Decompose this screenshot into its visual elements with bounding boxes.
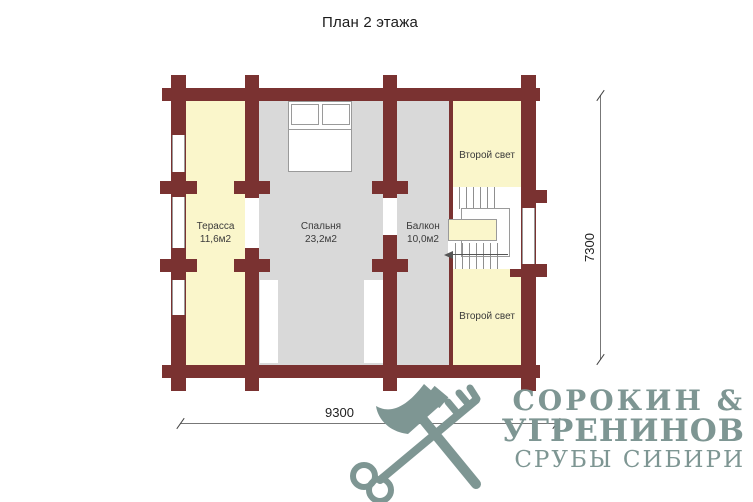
log-stub (372, 181, 408, 194)
dimension-height-label-wrap: 7300 (582, 261, 611, 279)
room-bedroom-label: Спальня (301, 220, 341, 234)
closet-right (364, 280, 383, 363)
room-terrace-label: Терасса (197, 220, 235, 234)
log-stub (234, 259, 270, 272)
stair-direction-arrow-icon (444, 251, 453, 259)
bed-fold-line (289, 129, 351, 130)
log-stub (245, 75, 259, 114)
log-stub (160, 259, 197, 272)
closet-left (260, 280, 278, 363)
wall-top (162, 88, 540, 101)
floor-plan-page: План 2 этажа Терасса 11,6м2 Спальня 23,2… (0, 0, 753, 502)
room-balcony-label: Балкон (406, 220, 440, 234)
room-bedroom-area: 23,2м2 (305, 233, 337, 247)
log-stub (171, 75, 186, 114)
stair-direction-line (452, 254, 508, 255)
bed-pillow-left (291, 104, 319, 125)
door-terrace-bedroom (245, 198, 259, 248)
page-title: План 2 этажа (0, 14, 740, 31)
door-bedroom-balcony (383, 198, 397, 235)
room-balcony-area: 10,0м2 (407, 233, 439, 247)
axe-and-key-logo-icon (346, 380, 518, 502)
bed-pillow-right (322, 104, 350, 125)
room-second-light-top-label: Второй свет (459, 149, 515, 163)
log-stub (372, 259, 408, 272)
window-right-stair (522, 208, 535, 264)
log-stub (160, 181, 197, 194)
window-left-2 (172, 197, 185, 248)
log-stub (245, 352, 259, 391)
window-left-3 (172, 280, 185, 315)
dimension-height-label: 7300 (582, 233, 597, 262)
logo-text: СОРОКИН & УГРЕНИНОВ СРУБЫ СИБИРИ (497, 386, 745, 473)
room-balcony: Балкон 10,0м2 (397, 101, 449, 365)
room-terrace-area: 11,6м2 (200, 233, 231, 247)
room-second-light-top: Второй свет (453, 101, 521, 187)
logo-name-line2: УГРЕНИНОВ (497, 415, 745, 447)
room-second-light-bottom-label: Второй свет (459, 310, 515, 324)
log-stub (234, 181, 270, 194)
room-terrace: Терасса 11,6м2 (186, 101, 245, 365)
stair-treads-upper (459, 187, 501, 209)
dimension-line-vertical (600, 95, 601, 360)
room-second-light-bottom: Второй свет (453, 269, 521, 365)
logo-name-line1: СОРОКИН & (497, 386, 745, 415)
log-stub (383, 75, 397, 114)
log-stub (521, 75, 536, 114)
logo-tagline: СРУБЫ СИБИРИ (497, 449, 745, 473)
stair-landing (448, 219, 497, 241)
wall-bottom (162, 365, 540, 378)
stair-treads-lower (455, 243, 501, 269)
window-left-1 (172, 135, 185, 172)
log-stub (171, 352, 186, 391)
